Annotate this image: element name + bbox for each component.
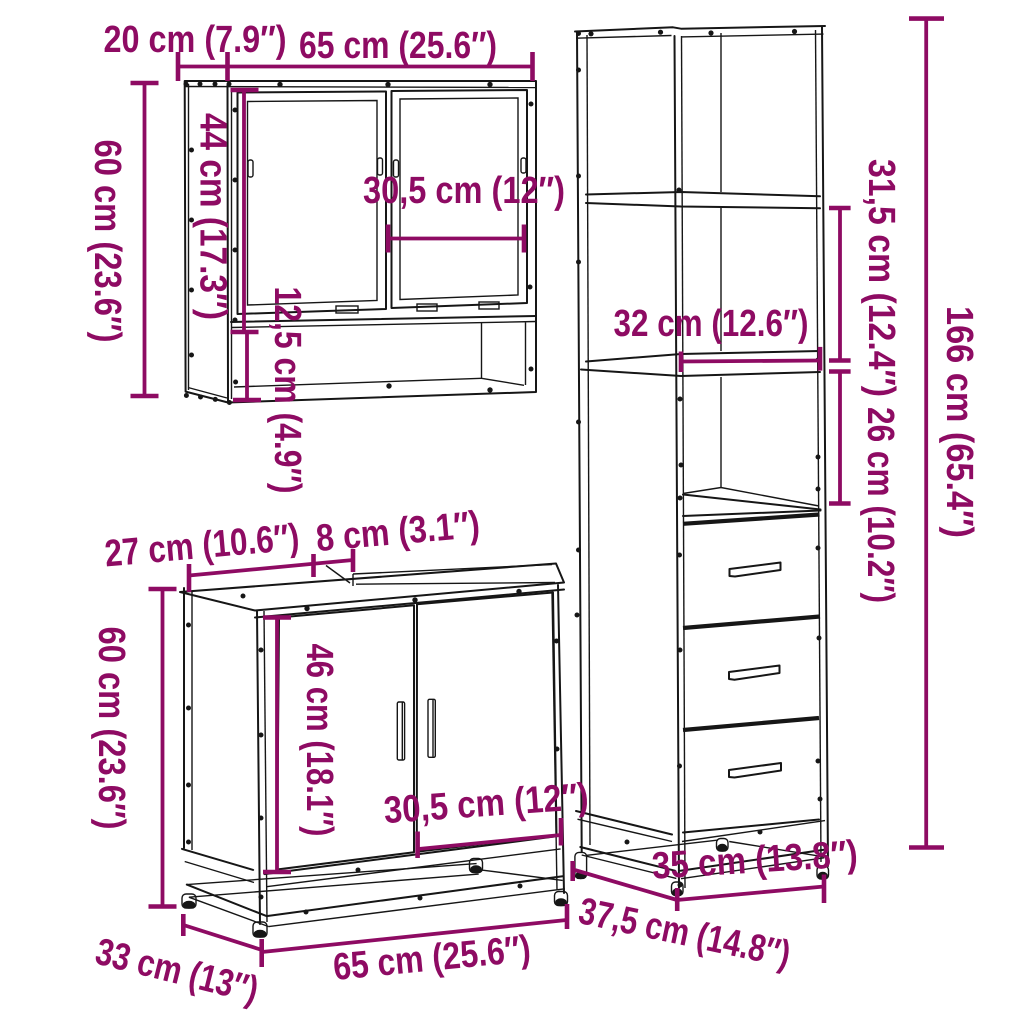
svg-text:31,5 cm (12.4″): 31,5 cm (12.4″) xyxy=(860,159,902,397)
svg-text:20 cm (7.9″): 20 cm (7.9″) xyxy=(104,19,287,61)
svg-text:12,5 cm (4.9″): 12,5 cm (4.9″) xyxy=(266,287,308,494)
svg-text:46 cm (18.1″): 46 cm (18.1″) xyxy=(298,644,340,837)
svg-text:30,5 cm (12″): 30,5 cm (12″) xyxy=(363,170,565,212)
svg-text:26 cm (10.2″): 26 cm (10.2″) xyxy=(859,407,901,603)
svg-text:60 cm (23.6″): 60 cm (23.6″) xyxy=(86,140,128,343)
svg-text:60 cm (23.6″): 60 cm (23.6″) xyxy=(90,627,132,830)
svg-text:65 cm (25.6″): 65 cm (25.6″) xyxy=(299,25,497,67)
svg-text:44 cm (17.3″): 44 cm (17.3″) xyxy=(192,113,234,320)
svg-text:166 cm (65.4″): 166 cm (65.4″) xyxy=(938,306,980,538)
svg-text:32 cm (12.6″): 32 cm (12.6″) xyxy=(614,303,809,345)
